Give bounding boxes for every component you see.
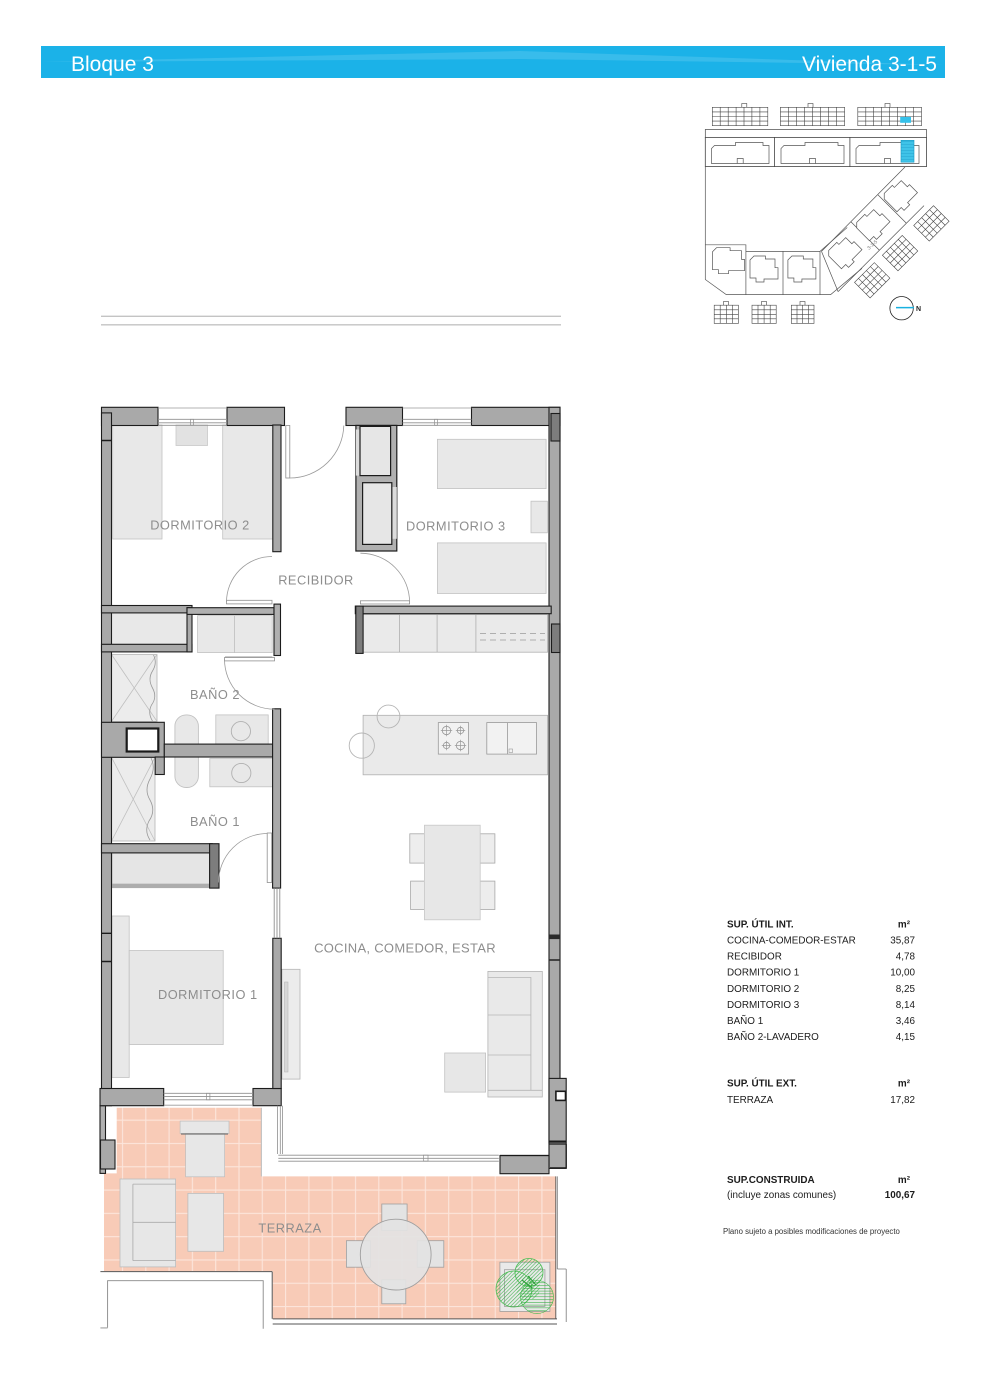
- svg-text:COCINA, COMEDOR, ESTAR: COCINA, COMEDOR, ESTAR: [314, 941, 496, 956]
- svg-text:DORMITORIO 2: DORMITORIO 2: [727, 984, 799, 995]
- svg-text:4,78: 4,78: [896, 952, 916, 963]
- svg-text:Plano sujeto a posibles modifi: Plano sujeto a posibles modificaciones d…: [723, 1227, 900, 1236]
- svg-text:DORMITORIO 3: DORMITORIO 3: [727, 1000, 800, 1011]
- svg-text:SUP. ÚTIL EXT.: SUP. ÚTIL EXT.: [727, 1078, 797, 1090]
- svg-text:N: N: [916, 306, 921, 313]
- svg-text:SUP. ÚTIL INT.: SUP. ÚTIL INT.: [727, 919, 794, 931]
- svg-text:m²: m²: [898, 1175, 911, 1186]
- svg-text:BAÑO 1: BAÑO 1: [727, 1016, 764, 1027]
- svg-text:RECIBIDOR: RECIBIDOR: [727, 952, 782, 963]
- svg-text:(incluye zonas comunes): (incluye zonas comunes): [727, 1190, 836, 1201]
- svg-text:DORMITORIO 2: DORMITORIO 2: [150, 518, 250, 533]
- svg-text:Bloque 3: Bloque 3: [71, 53, 154, 76]
- svg-text:m²: m²: [898, 920, 911, 931]
- svg-text:COCINA-COMEDOR-ESTAR: COCINA-COMEDOR-ESTAR: [727, 936, 856, 947]
- svg-text:TERRAZA: TERRAZA: [727, 1095, 774, 1106]
- svg-text:Vivienda 3-1-5: Vivienda 3-1-5: [802, 53, 937, 76]
- svg-text:TERRAZA: TERRAZA: [258, 1221, 321, 1236]
- svg-text:35,87: 35,87: [890, 936, 915, 947]
- svg-text:BAÑO 2-LAVADERO: BAÑO 2-LAVADERO: [727, 1032, 819, 1043]
- svg-text:DORMITORIO 3: DORMITORIO 3: [406, 519, 506, 534]
- svg-text:17,82: 17,82: [890, 1095, 915, 1106]
- svg-text:8,14: 8,14: [896, 1000, 916, 1011]
- svg-text:100,67: 100,67: [885, 1190, 916, 1201]
- svg-text:3,46: 3,46: [896, 1016, 916, 1027]
- svg-text:DORMITORIO 1: DORMITORIO 1: [158, 987, 258, 1002]
- svg-text:m²: m²: [898, 1079, 911, 1090]
- svg-text:DORMITORIO 1: DORMITORIO 1: [727, 968, 800, 979]
- svg-text:4,15: 4,15: [896, 1032, 916, 1043]
- svg-text:BAÑO 1: BAÑO 1: [190, 814, 240, 829]
- svg-text:BAÑO 2: BAÑO 2: [190, 687, 240, 702]
- svg-text:SUP.CONSTRUIDA: SUP.CONSTRUIDA: [727, 1175, 815, 1186]
- svg-text:10,00: 10,00: [890, 968, 915, 979]
- svg-text:RECIBIDOR: RECIBIDOR: [278, 573, 354, 588]
- svg-text:8,25: 8,25: [896, 984, 916, 995]
